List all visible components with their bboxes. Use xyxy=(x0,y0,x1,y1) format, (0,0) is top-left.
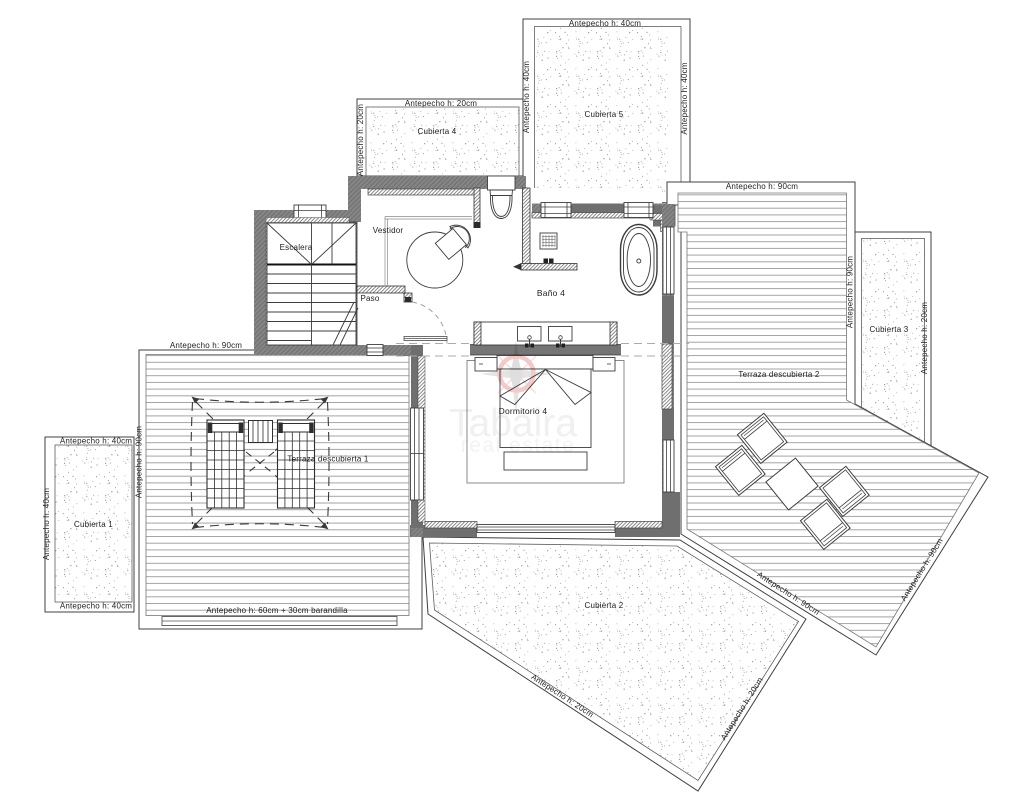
svg-text:Antepecho h: 90cm: Antepecho h: 90cm xyxy=(726,182,798,191)
svg-text:Escalera: Escalera xyxy=(280,243,313,252)
svg-text:Antepecho h: 90cm: Antepecho h: 90cm xyxy=(846,256,855,328)
svg-text:Antepecho h: 60cm + 30cm bara: Antepecho h: 60cm + 30cm barandilla xyxy=(206,606,348,615)
svg-text:Antepecho h: 90cm: Antepecho h: 90cm xyxy=(135,426,144,498)
svg-text:Vestidor: Vestidor xyxy=(373,226,404,235)
svg-text:Paso: Paso xyxy=(360,294,379,303)
svg-text:Antepecho h: 90cm: Antepecho h: 90cm xyxy=(170,341,242,350)
svg-text:Terraza descubierta 1: Terraza descubierta 1 xyxy=(287,455,368,464)
svg-text:Antepecho h: 20cm: Antepecho h: 20cm xyxy=(356,104,365,176)
svg-text:Antepecho h: 40cm: Antepecho h: 40cm xyxy=(42,488,51,560)
svg-text:Terraza descubierta 2: Terraza descubierta 2 xyxy=(738,370,819,379)
svg-text:Cubierta 4: Cubierta 4 xyxy=(418,127,457,136)
svg-text:Antepecho h: 40cm: Antepecho h: 40cm xyxy=(60,437,132,446)
svg-text:Cubierta 2: Cubierta 2 xyxy=(585,601,624,610)
svg-text:Cubierta 1: Cubierta 1 xyxy=(74,520,113,529)
svg-text:Antepecho h: 40cm: Antepecho h: 40cm xyxy=(680,62,689,134)
svg-text:Antepecho h: 20cm: Antepecho h: 20cm xyxy=(405,99,477,108)
svg-text:Antepecho h: 20cm: Antepecho h: 20cm xyxy=(920,302,929,374)
svg-text:Antepecho h: 40cm: Antepecho h: 40cm xyxy=(569,19,641,28)
svg-text:Baño 4: Baño 4 xyxy=(537,288,565,298)
svg-text:Cubierta 3: Cubierta 3 xyxy=(870,325,909,334)
svg-text:Antepecho h: 40cm: Antepecho h: 40cm xyxy=(522,61,531,133)
svg-text:real estate: real estate xyxy=(461,434,576,457)
svg-text:Cubierta 5: Cubierta 5 xyxy=(585,110,624,119)
svg-text:Antepecho h: 40cm: Antepecho h: 40cm xyxy=(60,602,132,611)
